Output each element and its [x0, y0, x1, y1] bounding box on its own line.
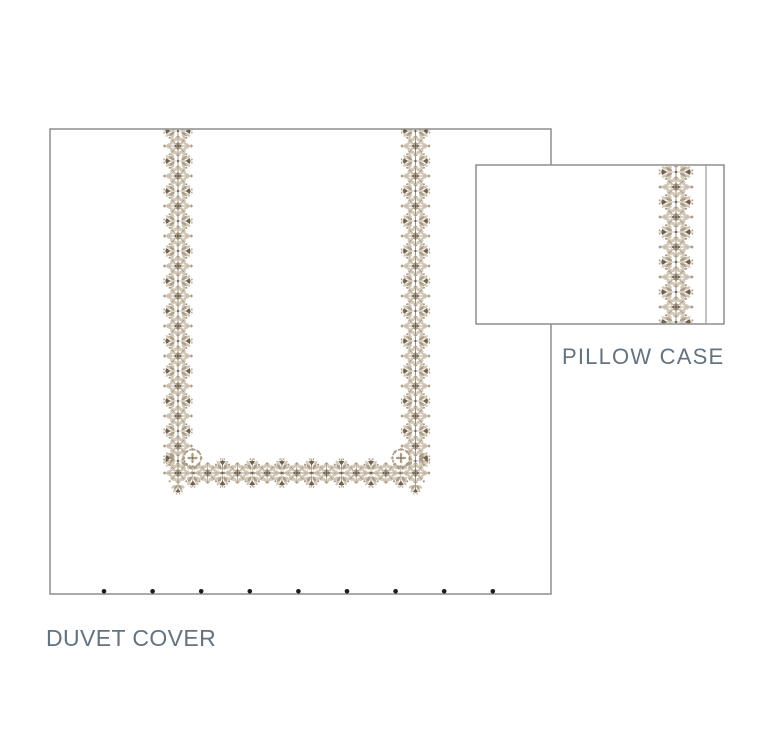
svg-text:DUVET COVER: DUVET COVER [46, 625, 216, 651]
svg-text:PILLOW CASE: PILLOW CASE [562, 344, 724, 369]
